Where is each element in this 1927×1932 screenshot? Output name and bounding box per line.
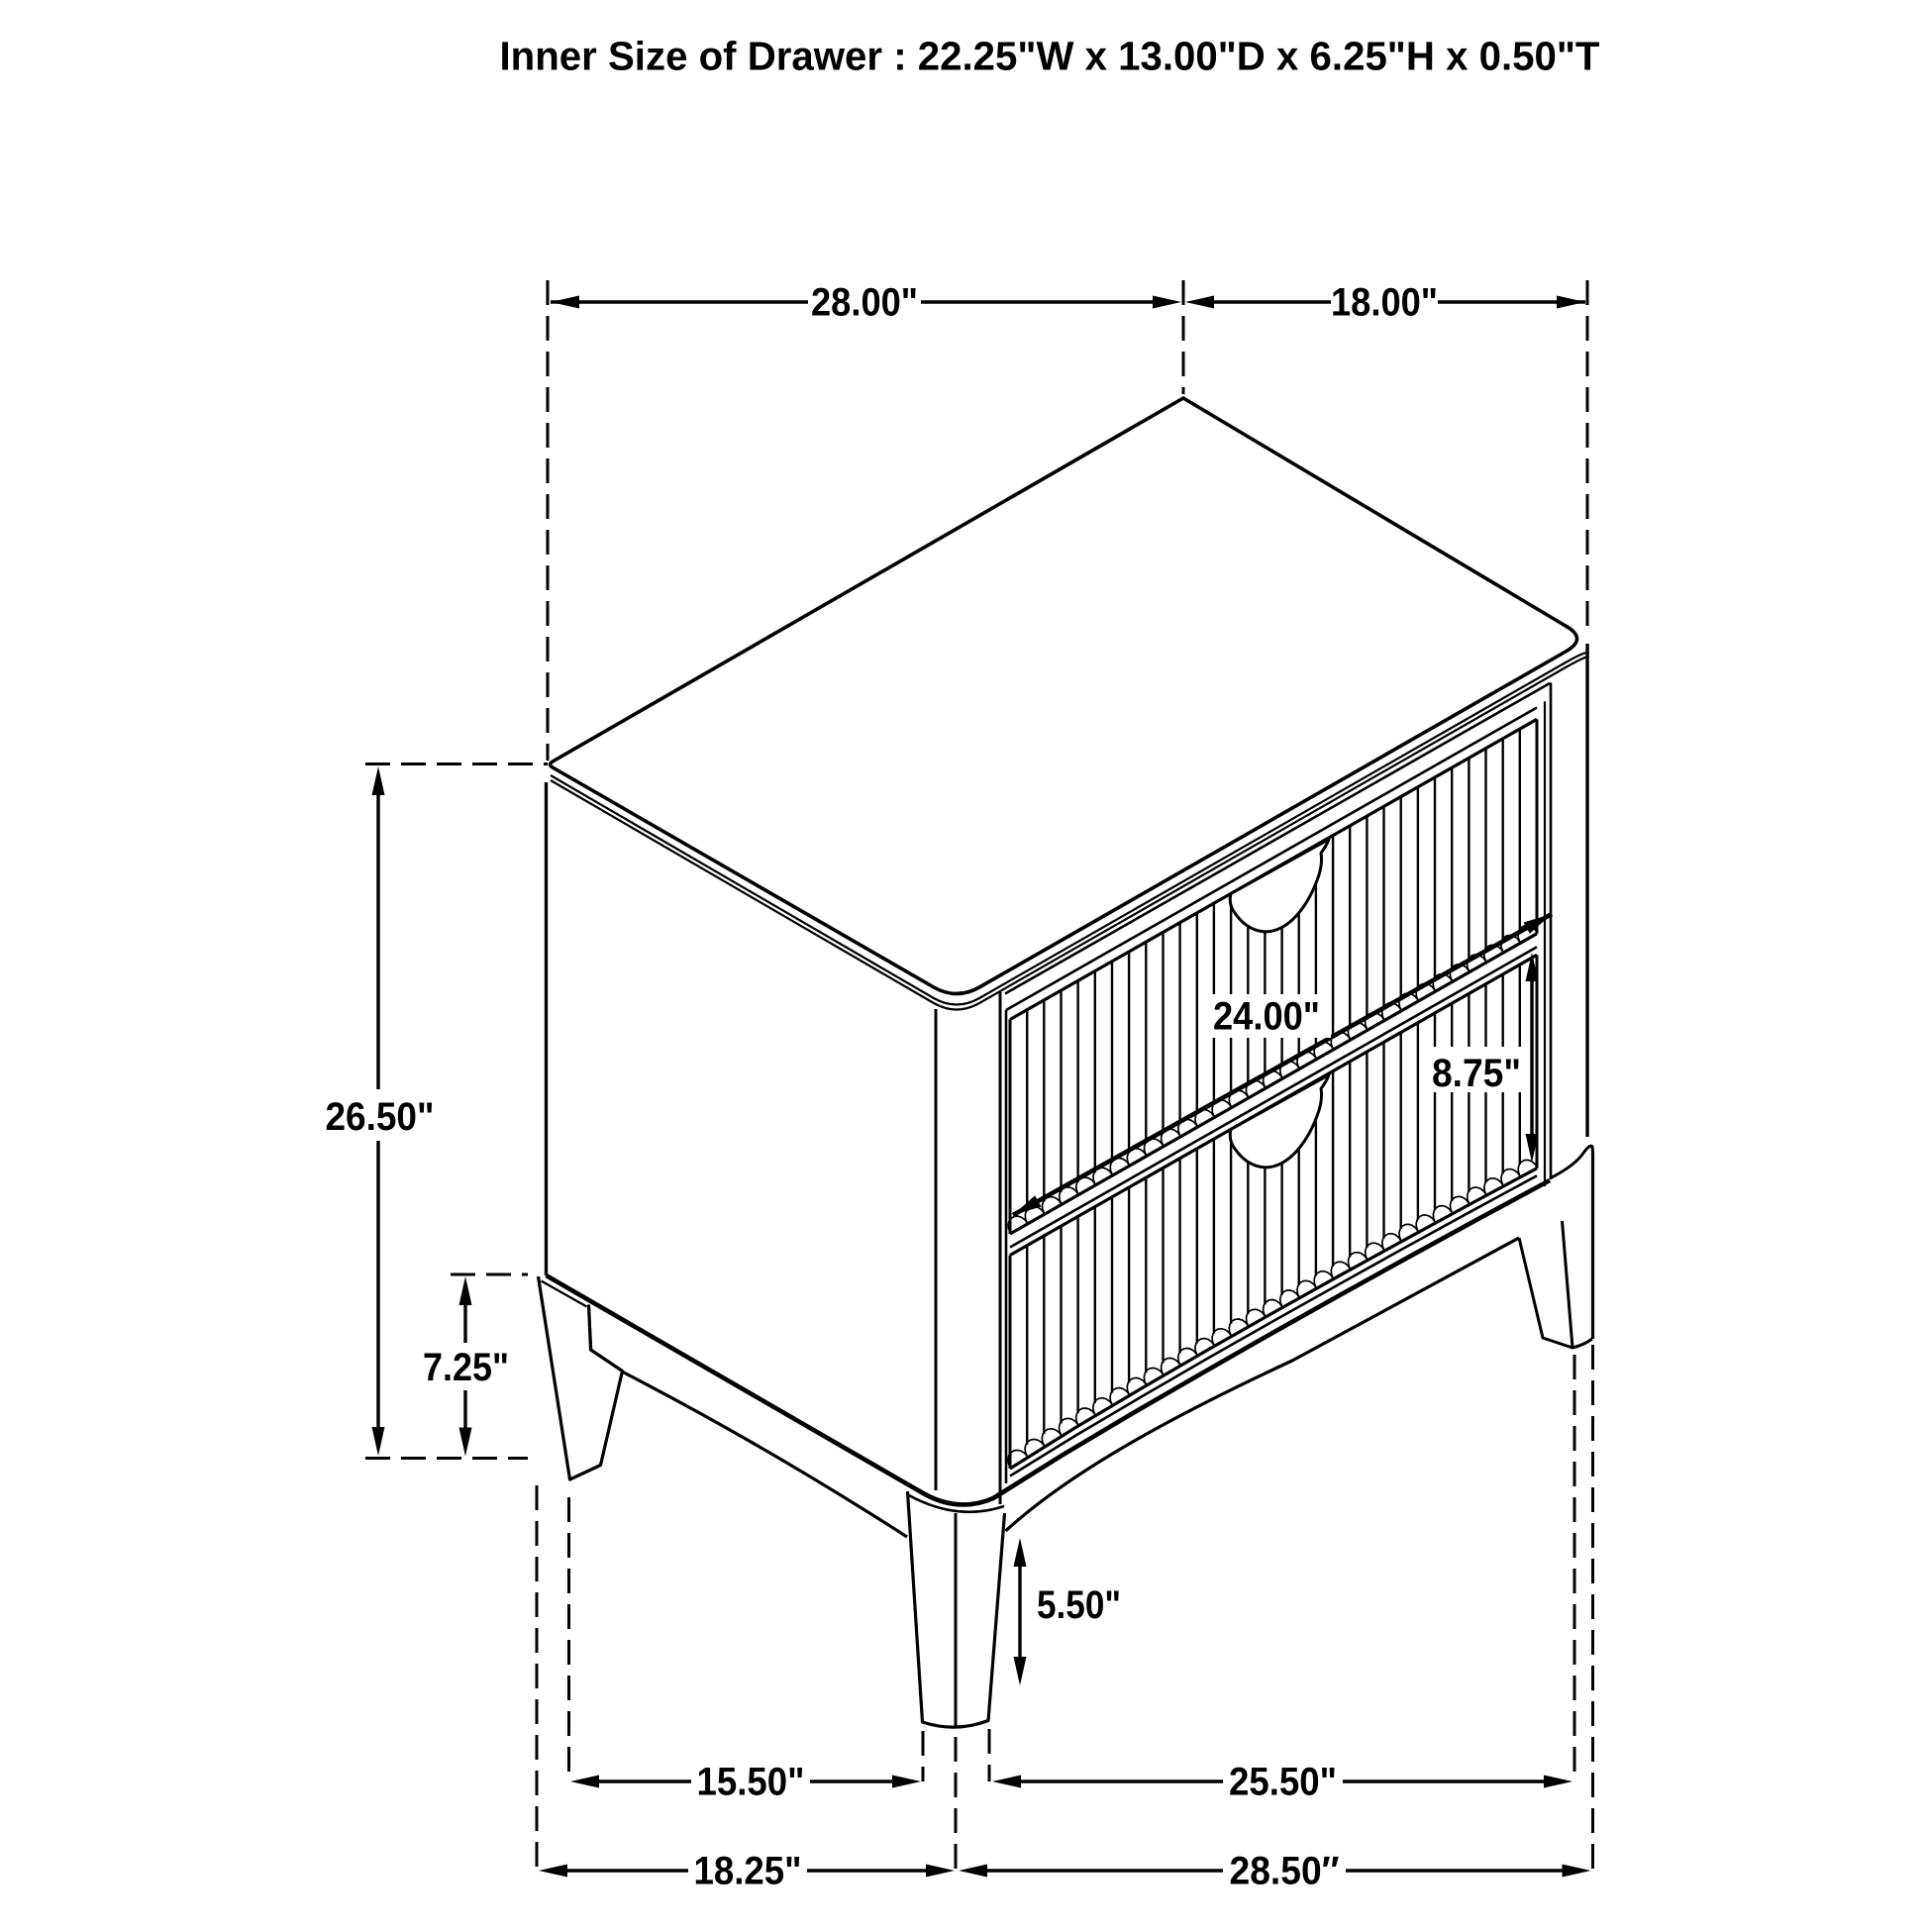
svg-text:24.00": 24.00" — [1213, 995, 1320, 1039]
svg-text:5.50": 5.50" — [1037, 1583, 1121, 1627]
svg-text:18.25": 18.25" — [694, 1850, 802, 1893]
svg-text:8.75": 8.75" — [1432, 1052, 1521, 1095]
svg-text:Inner Size of Drawer : 22.25"W: Inner Size of Drawer : 22.25"W x 13.00"D… — [500, 34, 1600, 79]
svg-text:28.50″: 28.50″ — [1230, 1850, 1340, 1893]
svg-text:18.00": 18.00" — [1331, 281, 1438, 325]
svg-text:26.50": 26.50" — [326, 1095, 435, 1139]
svg-text:7.25": 7.25" — [423, 1346, 509, 1389]
svg-text:28.00": 28.00" — [811, 281, 918, 325]
svg-text:25.50": 25.50" — [1229, 1761, 1337, 1804]
svg-text:15.50": 15.50" — [697, 1761, 805, 1804]
